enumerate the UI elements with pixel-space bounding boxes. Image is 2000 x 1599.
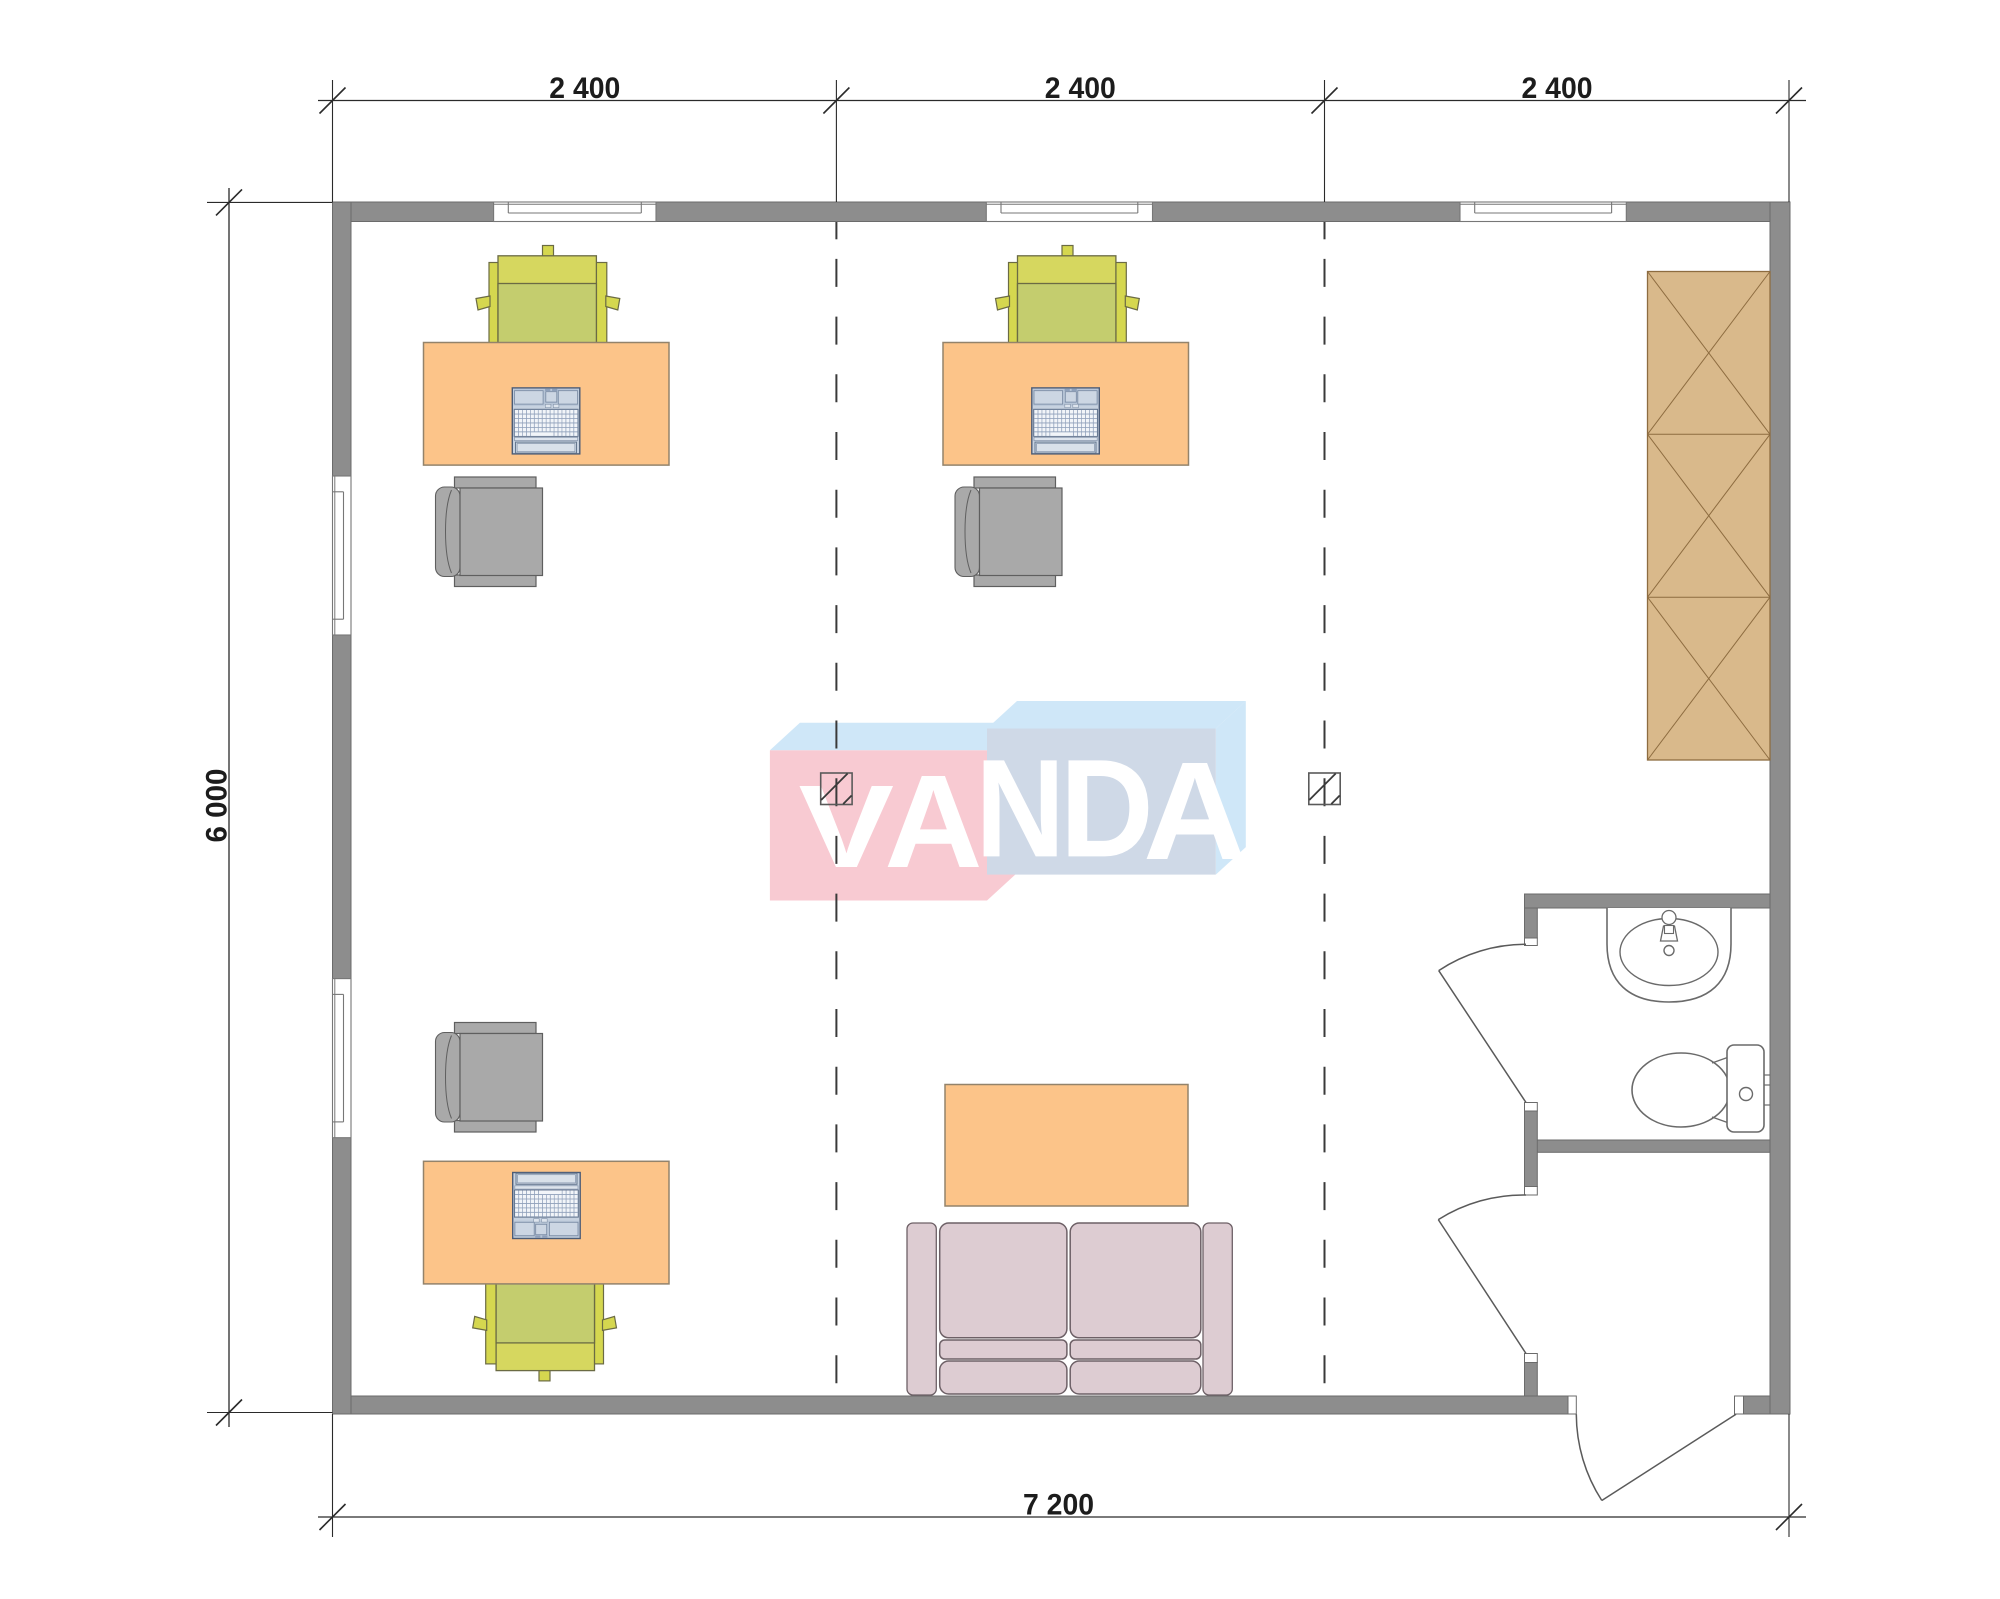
svg-text:7 200: 7 200 <box>1023 1489 1094 1522</box>
svg-text:2 400: 2 400 <box>549 72 620 105</box>
svg-text:V: V <box>799 760 895 892</box>
svg-text:2 400: 2 400 <box>1522 72 1593 105</box>
svg-text:D: D <box>1060 730 1154 886</box>
svg-text:2 400: 2 400 <box>1045 72 1116 105</box>
svg-text:A: A <box>884 749 982 896</box>
svg-text:6 000: 6 000 <box>201 769 234 843</box>
svg-text:A: A <box>1143 734 1247 890</box>
svg-text:N: N <box>975 730 1065 886</box>
